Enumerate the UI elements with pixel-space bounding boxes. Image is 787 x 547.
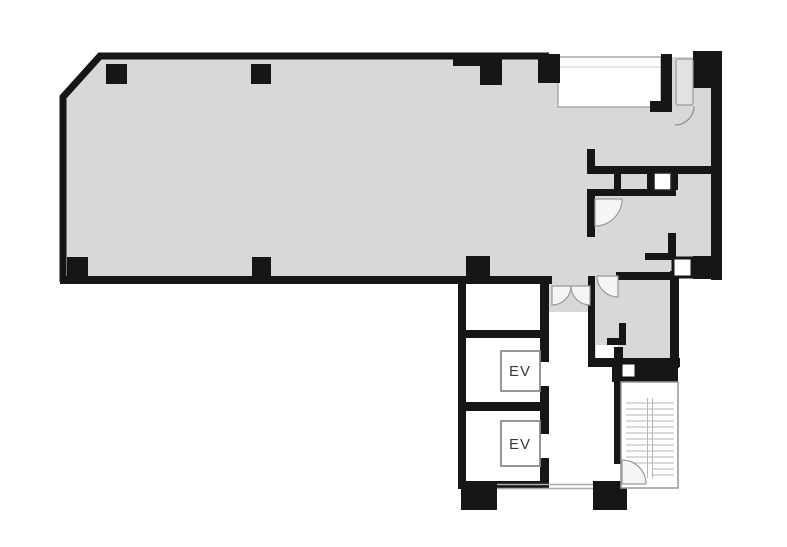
washroom-top-wall [587, 166, 717, 174]
vestibule-right-wall [540, 278, 549, 338]
wc-top-wall [616, 272, 676, 280]
core-left-wall [458, 277, 466, 488]
balcony-door-leaf [676, 59, 693, 105]
elevator-1: EV [501, 351, 540, 391]
elevator-label: EV [509, 363, 531, 380]
column [251, 64, 271, 84]
stairwell [621, 382, 678, 488]
floor-plan-drawing: EV EV [0, 0, 787, 547]
toilet-stall-box [654, 173, 671, 190]
shaft-wall-h [645, 253, 668, 260]
shaft-wall-v [668, 233, 676, 260]
elevator-right-wall [540, 338, 549, 362]
shaft-black-block [693, 256, 722, 279]
elevator-label: EV [509, 436, 531, 453]
core-column [461, 485, 497, 510]
washroom-left-wall [587, 196, 595, 237]
vestibule-interior [466, 284, 540, 330]
balcony-under-wall [650, 101, 672, 112]
wc-partition-h [607, 338, 626, 345]
outer-wall-right [711, 51, 722, 280]
column [67, 257, 88, 278]
elevator-divider-wall [466, 402, 549, 411]
top-wall-step [453, 57, 480, 66]
column [466, 256, 490, 278]
elevator-right-wall [540, 458, 549, 484]
column [252, 257, 271, 278]
balcony-recess [558, 57, 661, 107]
wc-right-wall [670, 271, 679, 368]
shaft-white-box [673, 258, 692, 277]
stall-partition [647, 173, 654, 190]
elevator-2: EV [501, 421, 540, 466]
elevator-right-wall [540, 386, 549, 434]
column [106, 64, 127, 84]
pilaster-column [480, 55, 502, 85]
stall-partition [614, 173, 621, 190]
stair-notch-box [621, 363, 636, 378]
vestibule-bottom-wall [458, 330, 549, 338]
stall-partition [671, 173, 678, 190]
balcony-left-wall [538, 54, 560, 83]
floor-plan: EV EV [0, 0, 787, 547]
